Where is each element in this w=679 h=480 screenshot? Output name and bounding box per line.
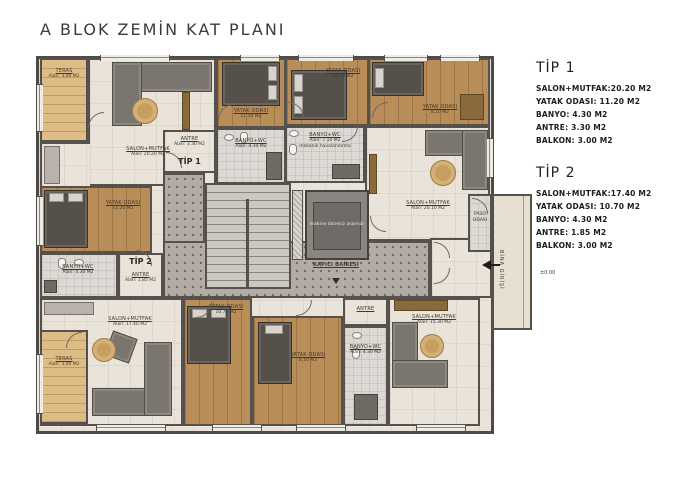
room-label-banyo-topright: BANYO+WCAlan: 7.10 M2mekanik havalandırm… [287, 132, 363, 150]
window [416, 425, 466, 431]
sofa-bottomleft-arm [144, 342, 172, 416]
console-topright [369, 154, 377, 194]
window [100, 55, 170, 61]
window [487, 138, 493, 178]
floor-plan: makine dairesiz asansör BİNA GİRİŞİ ±0.0… [36, 54, 576, 442]
room-label-banyo-bottomleft: BANYO+WCAlan: 4.30 M2 [42, 264, 114, 276]
room-label-paso: PASOODASI [468, 212, 492, 223]
sink-icon [352, 332, 362, 339]
kitchen-counter-topleft [44, 146, 60, 184]
legend-tip2: TİP 2 SALON+MUTFAK:17.40 M2 YATAK ODASI:… [536, 165, 676, 252]
legend-line: YATAK ODASI: 11.20 M2 [536, 95, 676, 108]
pillow [268, 66, 277, 81]
entry-arrow-icon [482, 260, 491, 270]
entry-arrow-stem [491, 264, 500, 266]
sofa-bottomright-horizontal [392, 360, 448, 388]
window [240, 55, 280, 61]
pillow [68, 193, 83, 202]
legend-line: BALKON: 3.00 M2 [536, 134, 676, 147]
legend-tip1: TİP 1 SALON+MUTFAK:20.20 M2 YATAK ODASI:… [536, 60, 676, 147]
legend-line: ANTRE: 1.85 M2 [536, 226, 676, 239]
down-arrow-icon [332, 278, 340, 284]
pillow [375, 68, 384, 88]
corridor-marker-label: KAPICI DAİRESİ [312, 262, 360, 268]
legend-line: BANYO: 4.30 M2 [536, 213, 676, 226]
room-label-teras-topleft: TERASAlan: 3.00 M2 [40, 68, 88, 80]
pillow [265, 325, 283, 334]
room-label-salon-bottomleft: SALON+MUTFAKAlan: 17.40 M2 [80, 316, 180, 328]
room-label-teras-bottomleft: TERASAlan: 3.00 M2 [40, 356, 88, 368]
shower-bottomright [354, 394, 378, 420]
type-marker-tip2: TİP 2 [118, 257, 163, 266]
page-title: A BLOK ZEMİN KAT PLANI [40, 20, 286, 39]
room-label-antre-bottomleft: ANTREAlan: 1.85 M2 [118, 272, 163, 284]
window [212, 425, 262, 431]
pillow [294, 74, 303, 92]
light-shaft [292, 190, 303, 260]
room-label-banyo-bottomright: BANYO+WCAlan: 4.30 M2 [341, 344, 390, 356]
pillow [268, 85, 277, 100]
type-legend: TİP 1 SALON+MUTFAK:20.20 M2 YATAK ODASI:… [536, 60, 676, 270]
shower-topleft [266, 152, 282, 180]
room-label-banyo-topleft: BANYO+WCAlan: 4.30 M2 [216, 138, 286, 150]
window [384, 55, 428, 61]
legend-line: SALON+MUTFAK:20.20 M2 [536, 82, 676, 95]
level-marker: ±0.00 [540, 270, 555, 276]
washer-bottomleft [44, 280, 57, 293]
legend-tip1-heading: TİP 1 [536, 60, 676, 76]
rug-bottomleft [92, 338, 116, 362]
window [37, 84, 43, 132]
shower-topright [332, 164, 360, 179]
room-label-bedroom-top-a: YATAK ODASI11.50 M2 [216, 108, 286, 120]
sofa-topright-arm [462, 130, 488, 190]
legend-line: BALKON: 3.00 M2 [536, 239, 676, 252]
rug-topleft [132, 98, 158, 124]
room-label-salon-topright: SALON+MUTFAKAlan: 20.10 M2 [392, 200, 464, 212]
type-marker-tip1: TİP 1 [163, 157, 216, 166]
room-label-antre-topleft: ANTREAlan: 3.30 M2 [163, 136, 216, 148]
room-label-bedroom-bottomleft: YATAK ODASI10.70 M2 [200, 304, 252, 316]
cabinet-topleft [182, 92, 190, 130]
window [296, 425, 346, 431]
room-label-bedroom-top-b: YATAK ODASI12.10 M2 [319, 68, 367, 80]
room-label-salon-bottomright: SALON+MUTFAKAlan: 15.30 M2 [390, 314, 478, 326]
entrance-steps [516, 196, 530, 328]
room-label-bedroom-bottommid: YATAK ODASI8.10 M2 [280, 352, 336, 364]
legend-line: BANYO: 4.30 M2 [536, 108, 676, 121]
window [96, 425, 166, 431]
window [440, 55, 480, 61]
legend-tip2-heading: TİP 2 [536, 165, 676, 181]
room-label-antre-bottomright: ANTRE [343, 306, 388, 312]
kitchen-counter-bottomright [394, 300, 448, 311]
legend-line: ANTRE: 3.30 M2 [536, 121, 676, 134]
elevator-label: makine dairesiz asansör [309, 222, 365, 227]
floor-plan-page: A BLOK ZEMİN KAT PLANI makine dai [0, 0, 679, 480]
window [298, 55, 354, 61]
entrance-label: BİNA GİRİŞİ [498, 250, 504, 290]
rug-bottomright [420, 334, 444, 358]
stair-divider [246, 199, 249, 287]
window [37, 196, 43, 246]
kitchen-counter-bottomleft [44, 302, 94, 315]
rug-topright [430, 160, 456, 186]
room-label-bedroom-top-c: YATAK ODASI8.10 M2 [410, 104, 470, 116]
elevator: makine dairesiz asansör [305, 190, 369, 260]
room-label-bedroom-midleft: YATAK ODASI11.20 M2 [96, 200, 150, 212]
legend-line: SALON+MUTFAK:17.40 M2 [536, 187, 676, 200]
pillow [49, 193, 64, 202]
legend-line: YATAK ODASI: 10.70 M2 [536, 200, 676, 213]
